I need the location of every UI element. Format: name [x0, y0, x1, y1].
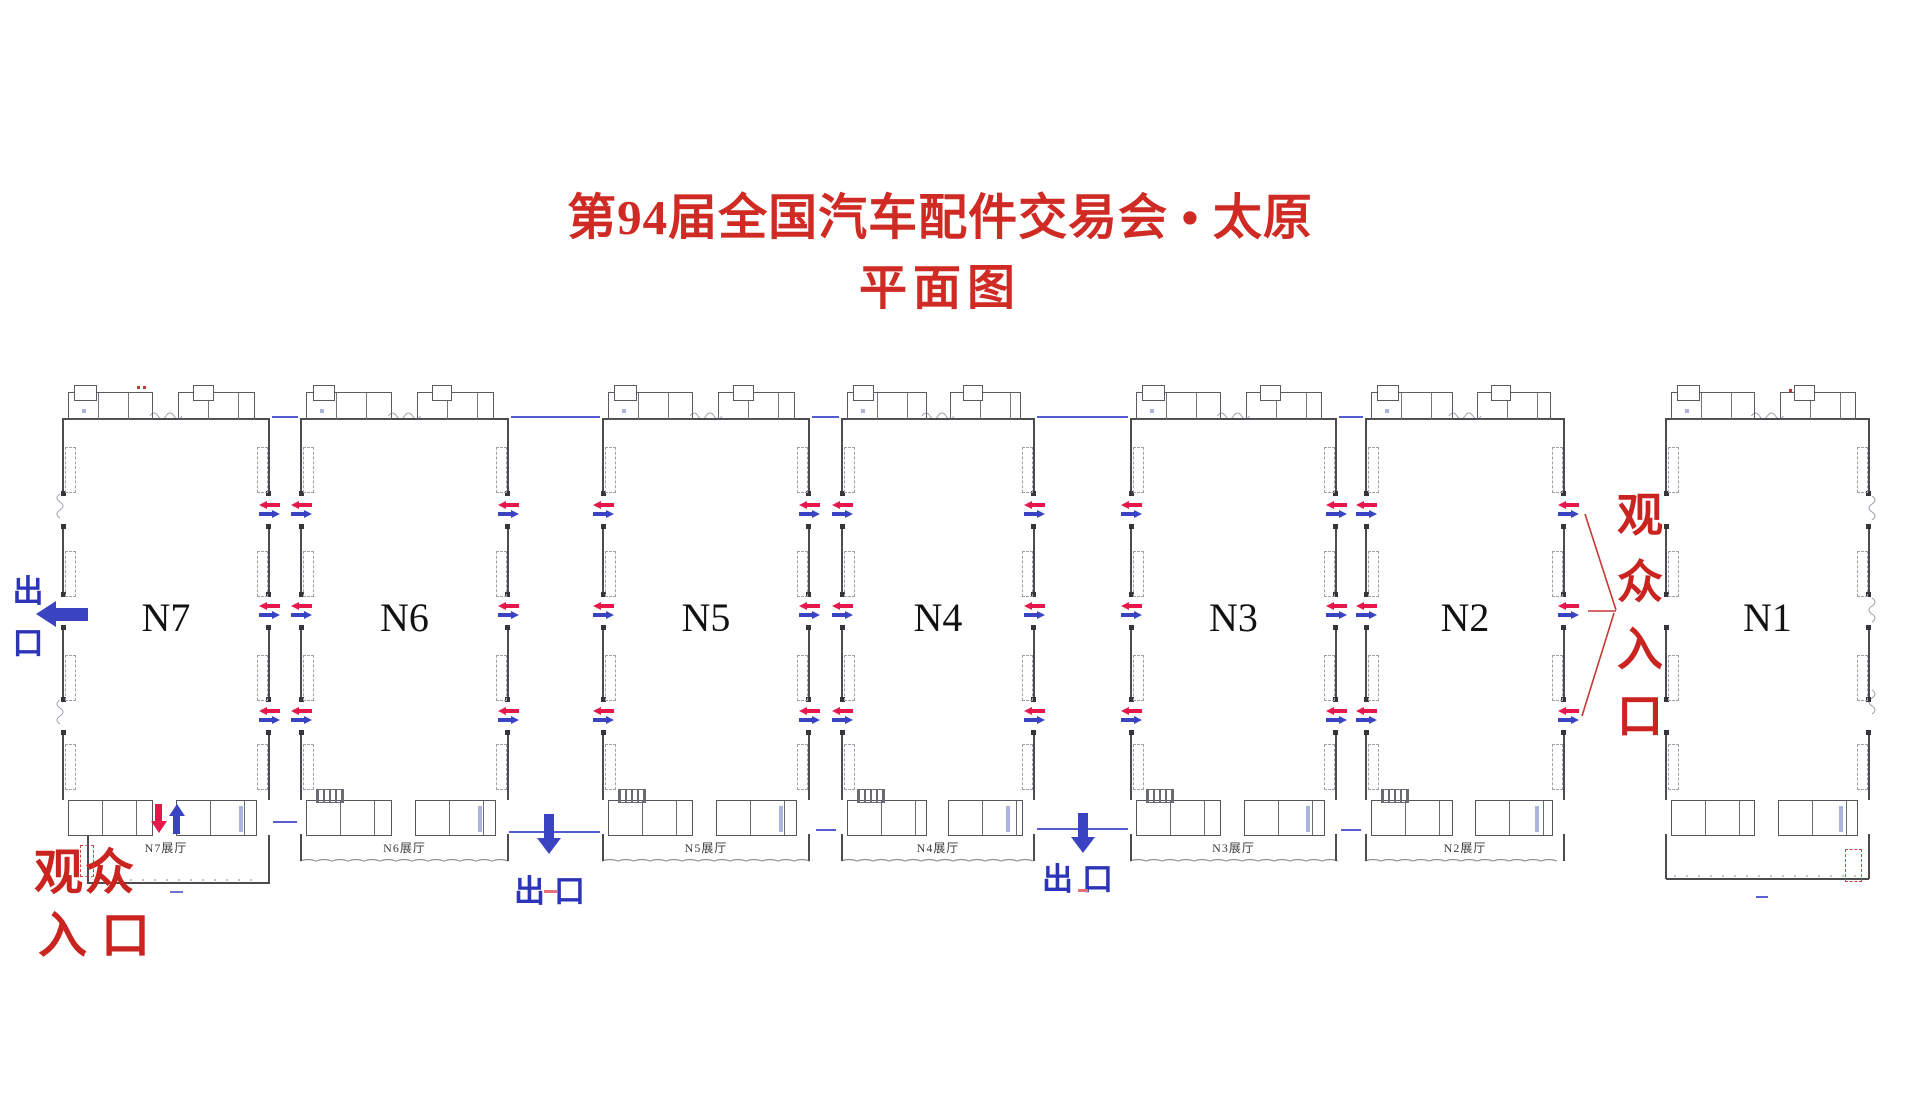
door-arrow-red-left-icon: [593, 602, 614, 610]
door-arrow-blue-right-icon: [1121, 510, 1142, 518]
stairs-icon: [857, 789, 885, 803]
arrow-shaft: [1129, 604, 1142, 608]
door-niche: [1133, 447, 1144, 493]
door-niche: [65, 447, 76, 493]
door-niche: [496, 655, 507, 701]
door-arrow-blue-right-icon: [1326, 611, 1347, 619]
wall-segment: [1335, 730, 1337, 800]
wall-segment: [1868, 524, 1870, 596]
door-arrow-blue-right-icon: [498, 611, 519, 619]
door-niche: [605, 655, 616, 701]
door-arrow-blue-right-icon: [1558, 716, 1579, 724]
door-niche: [1368, 655, 1379, 701]
arrow-head: [832, 707, 840, 715]
door-niche: [605, 551, 616, 597]
hall-label: N3: [1130, 594, 1337, 641]
stairs-icon: [1381, 789, 1409, 803]
arrow-shaft: [1364, 709, 1377, 713]
arrow-head: [1134, 611, 1142, 619]
door-niche: [1368, 551, 1379, 597]
door-jamb: [1333, 730, 1338, 735]
door-arrow-blue-right-icon: [593, 611, 614, 619]
arrow-head: [291, 602, 299, 610]
arrow-head: [498, 501, 506, 509]
arrow-shaft: [173, 816, 180, 834]
door-niche: [1022, 655, 1033, 701]
hall-bottom-label: N3展厅: [1130, 839, 1337, 856]
hall-label: N5: [602, 594, 810, 641]
arrow-shaft: [840, 503, 853, 507]
arrow-head: [1037, 510, 1045, 518]
hall-bottom-label: N6展厅: [300, 839, 509, 856]
arrow-head: [537, 838, 561, 854]
wall-accent: [1839, 806, 1843, 832]
arrow-shaft: [832, 512, 845, 516]
door-arrow-red-left-icon: [1356, 707, 1377, 715]
wall-segment: [1130, 419, 1132, 495]
arrow-head: [1356, 602, 1364, 610]
exit-label-n6-n5: 出口: [494, 866, 614, 911]
top-room: [614, 385, 637, 401]
door-arrow-blue-right-icon: [832, 510, 853, 518]
wall-segment: [808, 730, 810, 800]
arrow-shaft: [1364, 604, 1377, 608]
arrow-head: [1369, 510, 1377, 518]
arrow-head: [1369, 716, 1377, 724]
door-arrow-blue-right-icon: [799, 510, 820, 518]
wall-accent: [82, 409, 86, 413]
wall-segment: [1665, 419, 1667, 495]
arrow-shaft: [840, 709, 853, 713]
arrow-shaft: [807, 503, 820, 507]
top-room: [1491, 385, 1511, 401]
door-arrow-red-left-icon: [1558, 707, 1579, 715]
arrow-head: [511, 716, 519, 724]
door-jamb: [840, 730, 845, 735]
door-arrow-blue-right-icon: [291, 510, 312, 518]
wall-accent: [861, 409, 865, 413]
door-arrow-red-left-icon: [1558, 602, 1579, 610]
wall-accent: [1685, 409, 1689, 413]
door-arrow-red-left-icon: [291, 707, 312, 715]
wall-segment: [841, 419, 843, 495]
arrow-shaft: [1326, 613, 1339, 617]
door-niche: [257, 447, 268, 493]
door-arrow-blue-right-icon: [593, 716, 614, 724]
door-jamb: [1866, 730, 1871, 735]
arrow-head: [832, 602, 840, 610]
top-room: [432, 385, 453, 401]
arrow-shaft: [1566, 604, 1579, 608]
arrow-shaft: [601, 503, 614, 507]
door-arrow-red-left-icon: [1024, 602, 1045, 610]
door-jamb: [1664, 730, 1669, 735]
arrow-head: [593, 602, 601, 610]
arrow-shaft: [259, 613, 272, 617]
door-niche: [1552, 447, 1563, 493]
wall-segment: [602, 730, 604, 800]
exit-arrow-left-icon: [36, 601, 88, 627]
wall-accent: [1150, 409, 1154, 413]
door-arrow-blue-right-icon: [259, 611, 280, 619]
arrow-head: [1571, 510, 1579, 518]
door-jamb: [601, 730, 606, 735]
door-jamb: [299, 524, 304, 529]
arrow-shaft: [1121, 512, 1134, 516]
arrow-head: [1037, 716, 1045, 724]
hall-N5: N5N5展厅: [602, 385, 810, 915]
door-niche: [844, 551, 855, 597]
door-niche: [797, 447, 808, 493]
top-rooms: [417, 392, 494, 420]
wall-segment: [1365, 730, 1367, 800]
bottom-rooms: [1244, 800, 1325, 836]
door-niche: [797, 744, 808, 790]
hall-label: N7: [62, 594, 270, 641]
door-arrow-blue-right-icon: [1024, 611, 1045, 619]
wall-segment: [841, 524, 843, 596]
door-arrow-blue-right-icon: [1121, 611, 1142, 619]
door-arrow-red-left-icon: [799, 602, 820, 610]
door-niche: [1668, 744, 1679, 790]
arrow-shaft: [1326, 718, 1339, 722]
bottom-rooms: [1778, 800, 1858, 836]
arrow-shaft: [1024, 512, 1037, 516]
door-jamb: [61, 730, 66, 735]
door-arrow-blue-right-icon: [259, 716, 280, 724]
stairs-icon: [1146, 789, 1174, 803]
door-jamb: [1031, 524, 1036, 529]
wall-segment: [1563, 730, 1565, 800]
arrow-head: [812, 510, 820, 518]
vertical-char: 口: [1617, 683, 1663, 750]
door-jamb: [505, 524, 510, 529]
wall-segment: [1868, 419, 1870, 495]
wall-segment: [1130, 524, 1132, 596]
door-niche: [496, 551, 507, 597]
wall-accent: [1006, 806, 1010, 832]
top-room: [1260, 385, 1281, 401]
door-jamb: [266, 730, 271, 735]
pink-dash-icon: [544, 890, 557, 893]
door-niche: [1368, 744, 1379, 790]
door-niche: [605, 447, 616, 493]
arrow-shaft: [299, 604, 312, 608]
arrow-head: [606, 611, 614, 619]
arrow-shaft: [506, 604, 519, 608]
door-arrow-red-left-icon: [593, 707, 614, 715]
door-niche: [65, 551, 76, 597]
door-niche: [797, 655, 808, 701]
arrow-shaft: [840, 604, 853, 608]
arrow-head: [845, 716, 853, 724]
arrow-head: [1071, 837, 1095, 853]
arrow-head: [606, 716, 614, 724]
top-rooms: [1246, 392, 1323, 420]
hall-bottom-label: N4展厅: [841, 839, 1035, 856]
door-niche: [257, 551, 268, 597]
arrow-shaft: [1121, 718, 1134, 722]
arrow-head: [1339, 510, 1347, 518]
door-arrow-red-left-icon: [1326, 602, 1347, 610]
vertical-char: 入: [1617, 616, 1663, 683]
door-niche: [1857, 744, 1868, 790]
arrow-head: [1326, 602, 1334, 610]
arrow-head: [1037, 611, 1045, 619]
hall-N4: N4N4展厅: [841, 385, 1035, 915]
top-room: [963, 385, 982, 401]
door-arrow-red-left-icon: [291, 501, 312, 509]
door-jamb: [61, 524, 66, 529]
arrow-shaft: [1364, 503, 1377, 507]
arrow-head: [151, 821, 167, 833]
exit-arrow-down-icon: [537, 814, 561, 854]
wall-segment: [602, 524, 604, 596]
arrow-shaft: [1356, 512, 1369, 516]
top-rooms: [718, 392, 795, 420]
door-arrow-red-left-icon: [1356, 602, 1377, 610]
arrow-shaft: [291, 512, 304, 516]
stairs-icon: [316, 789, 344, 803]
arrow-head: [1326, 501, 1334, 509]
arrow-shaft: [807, 709, 820, 713]
door-arrow-blue-right-icon: [1121, 716, 1142, 724]
door-niche: [605, 744, 616, 790]
door-niche: [1668, 655, 1679, 701]
arrow-shaft: [259, 512, 272, 516]
door-jamb: [266, 524, 271, 529]
wall-segment: [300, 419, 302, 495]
door-arrow-red-left-icon: [1326, 501, 1347, 509]
door-arrow-red-left-icon: [832, 501, 853, 509]
door-jamb: [299, 730, 304, 735]
arrow-head: [593, 707, 601, 715]
arrow-shaft: [1334, 604, 1347, 608]
arrow-head: [812, 716, 820, 724]
door-niche: [844, 744, 855, 790]
door-arrow-red-left-icon: [259, 707, 280, 715]
door-arrow-blue-right-icon: [1356, 611, 1377, 619]
door-niche: [1324, 744, 1335, 790]
arrow-shaft: [299, 709, 312, 713]
arrow-shaft: [1566, 503, 1579, 507]
top-room: [1377, 385, 1399, 401]
exit-arrow-down-icon: [1071, 813, 1095, 853]
arrow-shaft: [267, 604, 280, 608]
arrow-shaft: [1078, 813, 1088, 837]
arrow-shaft: [799, 613, 812, 617]
arrow-shaft: [1356, 613, 1369, 617]
door-jamb: [1561, 730, 1566, 735]
door-niche: [1552, 744, 1563, 790]
arrow-shaft: [498, 512, 511, 516]
wall-segment: [1033, 524, 1035, 596]
wall-segment: [1033, 730, 1035, 800]
arrow-head: [845, 611, 853, 619]
arrow-shaft: [1032, 503, 1045, 507]
arrow-head: [272, 510, 280, 518]
door-jamb: [1561, 524, 1566, 529]
arrow-shaft: [1024, 718, 1037, 722]
door-niche: [1022, 551, 1033, 597]
arrow-shaft: [601, 604, 614, 608]
wall-segment: [808, 419, 810, 495]
arrow-head: [259, 501, 267, 509]
wall-segment: [1365, 524, 1367, 596]
door-jamb: [1031, 730, 1036, 735]
bottom-rooms: [306, 800, 392, 836]
arrow-shaft: [1558, 613, 1571, 617]
door-arrow-blue-right-icon: [1326, 716, 1347, 724]
arrow-shaft: [1129, 709, 1142, 713]
arrow-head: [1339, 611, 1347, 619]
arrow-head: [291, 707, 299, 715]
top-room: [1677, 385, 1700, 401]
floorplan: 出口 出口 出口 观众 入口 观众入口 N7N7展厅N6N6展厅N5N5展厅N4…: [0, 0, 1920, 1118]
arrow-shaft: [593, 718, 606, 722]
arrow-head: [259, 602, 267, 610]
arrow-shaft: [1326, 512, 1339, 516]
arrow-head: [832, 501, 840, 509]
arrow-shaft: [1334, 503, 1347, 507]
door-arrow-blue-right-icon: [498, 716, 519, 724]
door-arrow-blue-right-icon: [799, 611, 820, 619]
arrow-shaft: [299, 503, 312, 507]
wall-accent: [622, 409, 626, 413]
gate-arrow-red-down-icon: [151, 804, 167, 834]
door-niche: [1857, 655, 1868, 701]
door-arrow-red-left-icon: [799, 501, 820, 509]
door-niche: [1022, 744, 1033, 790]
bottom-rooms: [1475, 800, 1553, 836]
bottom-rooms: [415, 800, 496, 836]
door-arrow-blue-right-icon: [259, 510, 280, 518]
door-arrow-blue-right-icon: [1024, 716, 1045, 724]
door-jamb: [1333, 524, 1338, 529]
arrow-head: [1326, 707, 1334, 715]
door-arrow-red-left-icon: [593, 501, 614, 509]
wall-segment: [602, 419, 604, 495]
door-jamb: [806, 524, 811, 529]
arrow-head: [304, 611, 312, 619]
wall-segment: [62, 730, 64, 800]
door-niche: [844, 447, 855, 493]
visitor-entrance-east: 观众入口: [1612, 482, 1668, 750]
hall-label: N6: [300, 594, 509, 641]
door-arrow-red-left-icon: [498, 501, 519, 509]
arrow-shaft: [593, 613, 606, 617]
hall-N2: N2N2展厅: [1365, 385, 1565, 915]
arrow-shaft: [498, 613, 511, 617]
wall-accent: [1385, 409, 1389, 413]
wall-accent: [239, 806, 243, 832]
door-niche: [65, 744, 76, 790]
arrow-head: [1121, 501, 1129, 509]
arrow-head: [1339, 716, 1347, 724]
arrow-head: [36, 601, 56, 627]
door-niche: [257, 744, 268, 790]
arrow-head: [169, 804, 185, 816]
arrow-head: [498, 707, 506, 715]
arrow-shaft: [601, 709, 614, 713]
door-arrow-red-left-icon: [1326, 707, 1347, 715]
arrow-shaft: [1129, 503, 1142, 507]
door-arrow-red-left-icon: [799, 707, 820, 715]
arrow-head: [1369, 611, 1377, 619]
door-arrow-blue-right-icon: [593, 510, 614, 518]
arrow-head: [272, 716, 280, 724]
door-arrow-red-left-icon: [498, 602, 519, 610]
arrow-head: [1356, 501, 1364, 509]
bottom-rooms: [68, 800, 153, 836]
arrow-head: [799, 707, 807, 715]
arrow-head: [1024, 707, 1032, 715]
door-niche: [1552, 655, 1563, 701]
top-room: [853, 385, 874, 401]
hall-N7: N7N7展厅: [62, 385, 270, 915]
wall-segment: [300, 730, 302, 800]
wall-segment: [1033, 419, 1035, 495]
hall-N1: N1: [1665, 385, 1870, 915]
arrow-shaft: [544, 814, 554, 838]
arrow-shaft: [1356, 718, 1369, 722]
door-niche: [303, 655, 314, 701]
bottom-rooms: [176, 800, 257, 836]
top-room: [193, 385, 214, 401]
top-room: [74, 385, 97, 401]
door-niche: [1668, 447, 1679, 493]
arrow-head: [1558, 602, 1566, 610]
door-arrow-blue-right-icon: [832, 716, 853, 724]
door-jamb: [601, 524, 606, 529]
hall-label: N2: [1365, 594, 1565, 641]
wall-segment: [1130, 730, 1132, 800]
wall-segment: [268, 419, 270, 495]
door-niche: [844, 655, 855, 701]
wall-segment: [507, 730, 509, 800]
door-niche: [496, 744, 507, 790]
top-rooms: [1780, 392, 1856, 420]
arrow-shaft: [832, 718, 845, 722]
door-arrow-red-left-icon: [259, 602, 280, 610]
floorplan-canvas: 第94届全国汽车配件交易会 • 太原 平面图 出口 出口 出口 观众 入口 观众…: [0, 0, 1920, 1118]
door-jamb: [840, 524, 845, 529]
bottom-rooms: [1671, 800, 1755, 836]
top-room: [1142, 385, 1165, 401]
gate-arrow-blue-up-icon: [169, 804, 185, 834]
bottom-rooms: [608, 800, 693, 836]
door-arrow-blue-right-icon: [291, 611, 312, 619]
door-jamb: [1866, 524, 1871, 529]
arrow-head: [511, 510, 519, 518]
door-arrow-red-left-icon: [832, 602, 853, 610]
door-niche: [1324, 551, 1335, 597]
door-arrow-red-left-icon: [1024, 501, 1045, 509]
door-niche: [797, 551, 808, 597]
door-jamb: [1364, 524, 1369, 529]
door-niche: [65, 655, 76, 701]
door-arrow-blue-right-icon: [1356, 510, 1377, 518]
arrow-head: [304, 510, 312, 518]
wall-segment: [1365, 419, 1367, 495]
door-niche: [496, 447, 507, 493]
arrow-shaft: [1566, 709, 1579, 713]
arrow-shaft: [498, 718, 511, 722]
arrow-head: [1024, 602, 1032, 610]
arrow-shaft: [155, 804, 162, 821]
door-arrow-blue-right-icon: [799, 716, 820, 724]
wall-segment: [268, 730, 270, 800]
